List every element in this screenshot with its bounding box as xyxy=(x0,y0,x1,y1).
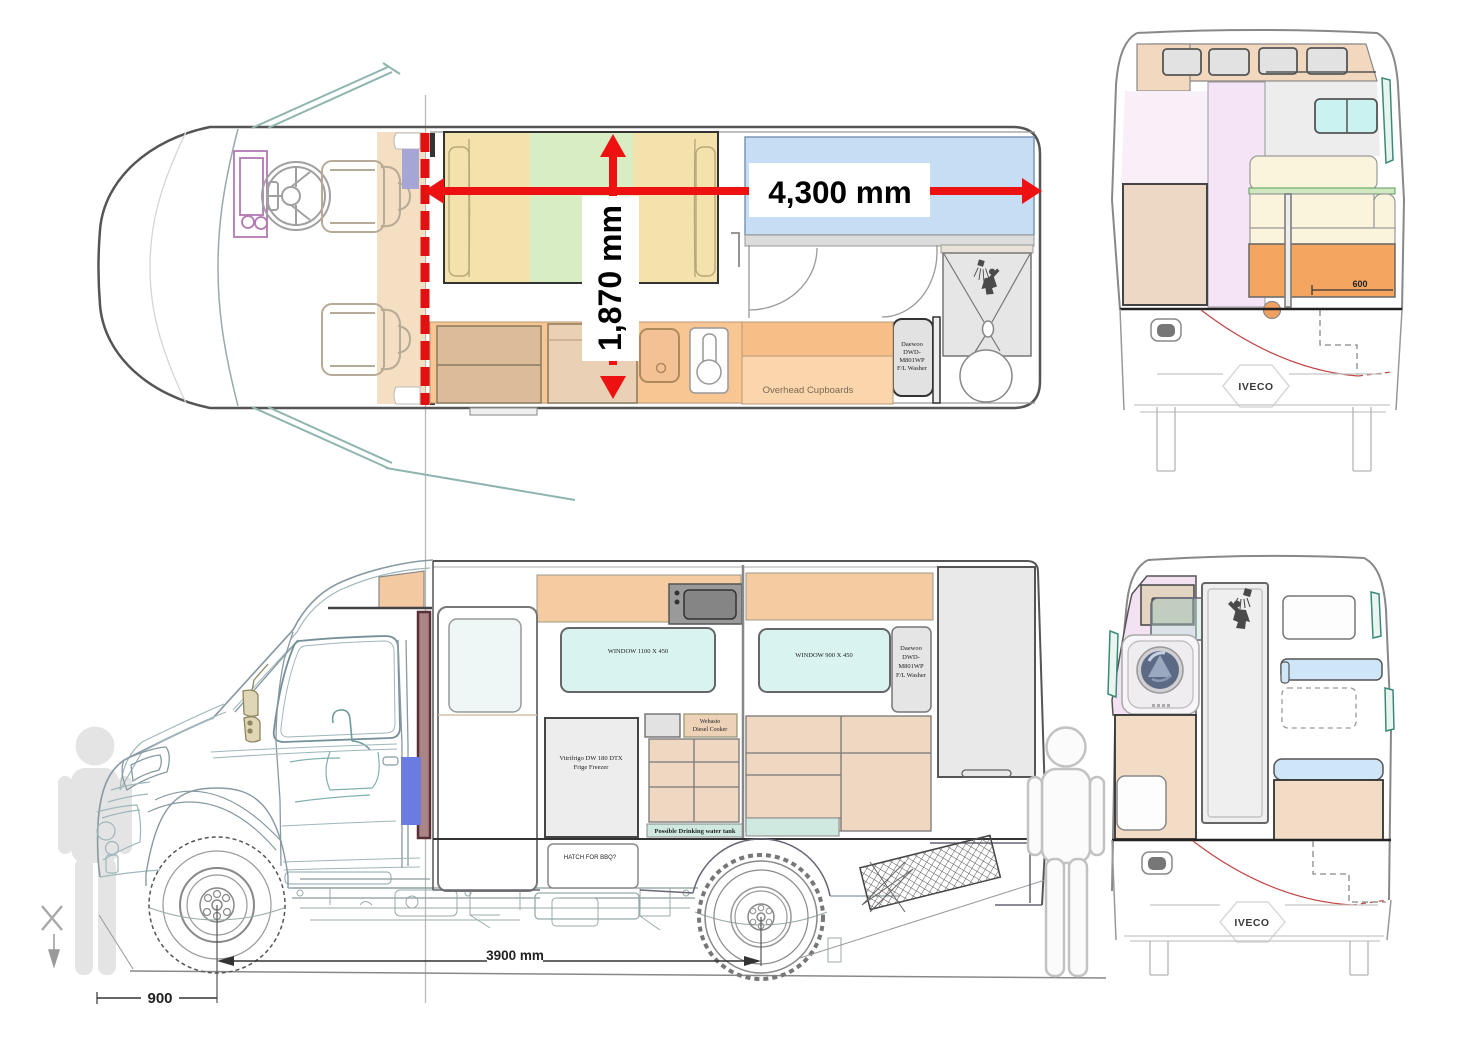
svg-text:Frige Freezer: Frige Freezer xyxy=(574,764,610,771)
svg-text:IVECO: IVECO xyxy=(1238,381,1273,393)
svg-text:Webasto: Webasto xyxy=(700,719,721,725)
svg-text:M801WP: M801WP xyxy=(898,663,924,670)
svg-text:Vitrifrigo DW 180 DTX: Vitrifrigo DW 180 DTX xyxy=(559,755,623,762)
svg-text:Daewoo: Daewoo xyxy=(901,341,923,348)
svg-text:4,300 mm: 4,300 mm xyxy=(768,174,912,210)
svg-text:Possible Drinking water tank: Possible Drinking water tank xyxy=(655,828,736,835)
svg-text:DWD-: DWD- xyxy=(902,654,920,661)
svg-text:F/L Washer: F/L Washer xyxy=(897,365,928,372)
svg-text:IVECO: IVECO xyxy=(1234,917,1269,929)
svg-text:600: 600 xyxy=(1352,279,1367,289)
svg-text:F/L Washer: F/L Washer xyxy=(896,672,927,679)
svg-text:3900 mm: 3900 mm xyxy=(486,948,544,963)
svg-text:WINDOW 1100 X 450: WINDOW 1100 X 450 xyxy=(608,648,668,655)
svg-text:HATCH FOR BBQ?: HATCH FOR BBQ? xyxy=(564,855,617,861)
svg-text:900: 900 xyxy=(147,990,172,1007)
svg-text:Daewoo: Daewoo xyxy=(900,645,922,652)
svg-text:Overhead Cupboards: Overhead Cupboards xyxy=(763,385,854,396)
svg-text:Diesel Cooker: Diesel Cooker xyxy=(693,727,728,733)
svg-text:WINDOW 900 X 450: WINDOW 900 X 450 xyxy=(795,652,852,659)
svg-text:DWD-: DWD- xyxy=(903,349,921,356)
svg-text:1,870 mm: 1,870 mm xyxy=(592,205,628,351)
svg-text:M801WP: M801WP xyxy=(899,357,925,364)
